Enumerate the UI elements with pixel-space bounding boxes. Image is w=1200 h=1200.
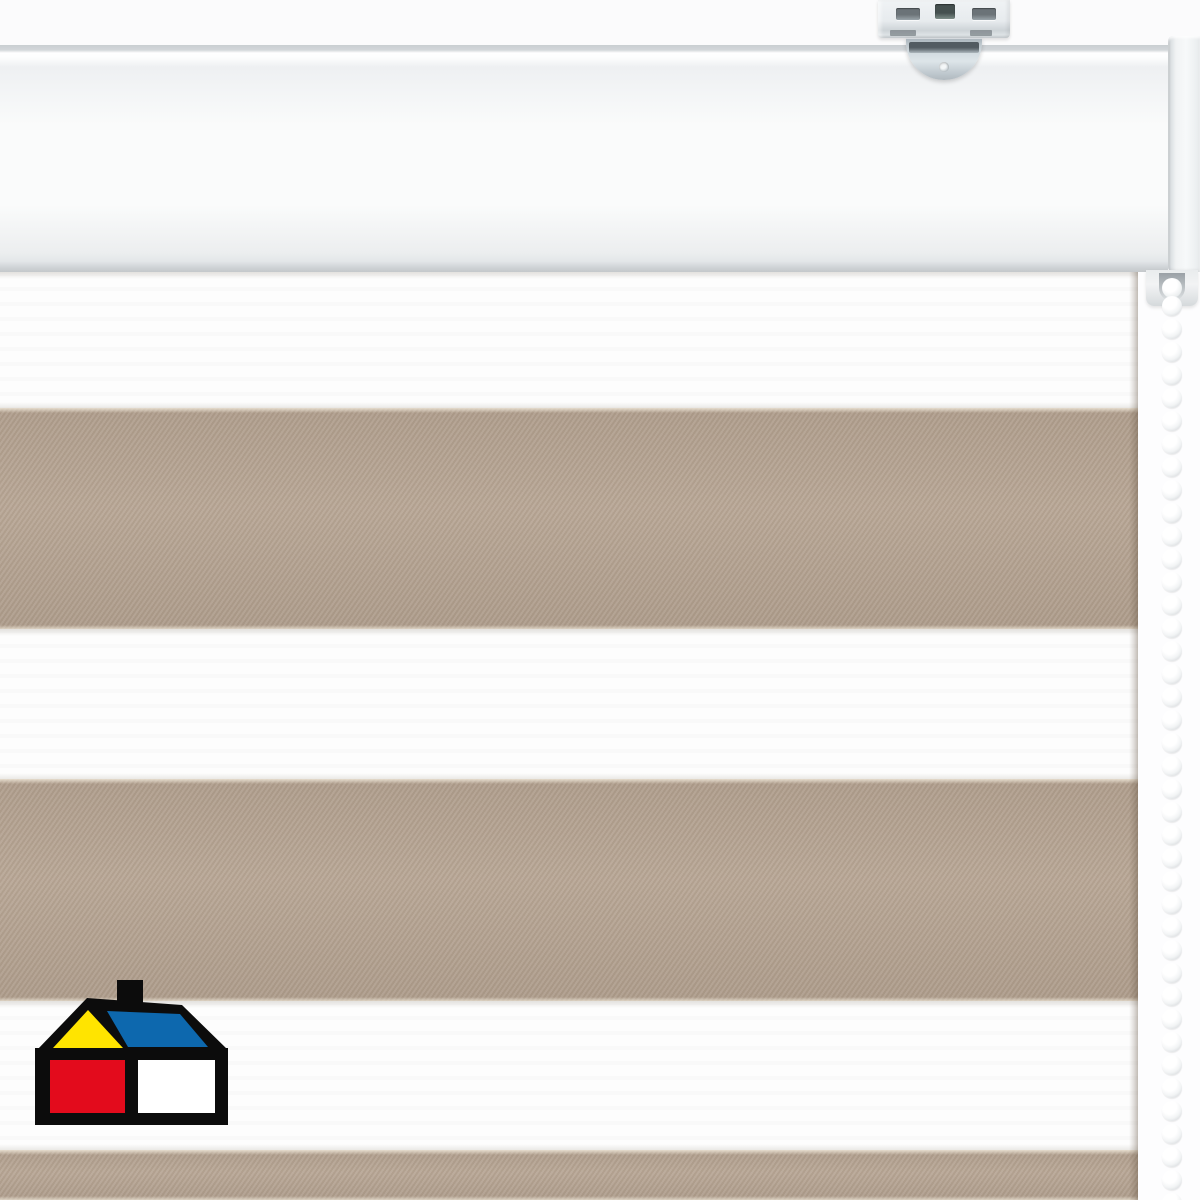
bracket-ceiling-plate bbox=[878, 0, 1010, 38]
chain-bead bbox=[1162, 710, 1182, 730]
chain-bead bbox=[1162, 871, 1182, 891]
mounting-bracket bbox=[878, 0, 1010, 82]
background-wall bbox=[0, 0, 1200, 45]
bracket-front-tab bbox=[906, 38, 982, 80]
chain-bead bbox=[1162, 894, 1182, 914]
chain-bead bbox=[1162, 503, 1182, 523]
chain-bead bbox=[1162, 733, 1182, 753]
chain-bead bbox=[1162, 411, 1182, 431]
chain-bead bbox=[1162, 1193, 1182, 1200]
fabric-stripe-beige bbox=[0, 1150, 1138, 1200]
chain-bead bbox=[1162, 365, 1182, 385]
logo-wall-white bbox=[138, 1060, 215, 1113]
fabric-right-edge-shade bbox=[1129, 272, 1138, 1200]
clutch-pulley bbox=[1162, 278, 1182, 298]
chain-bead bbox=[1162, 1147, 1182, 1167]
chain-bead bbox=[1162, 1055, 1182, 1075]
bracket-center-hole bbox=[935, 4, 955, 19]
chain-bead bbox=[1162, 319, 1182, 339]
chain-bead bbox=[1162, 388, 1182, 408]
chain-bead bbox=[1162, 779, 1182, 799]
chain-bead bbox=[1162, 1101, 1182, 1121]
chain-bead bbox=[1162, 940, 1182, 960]
chain-bead bbox=[1162, 1124, 1182, 1144]
bracket-fold-tab bbox=[970, 30, 992, 36]
chain-clutch bbox=[1146, 270, 1198, 306]
chain-bead bbox=[1162, 963, 1182, 983]
chain-bead bbox=[1162, 595, 1182, 615]
fabric-stripe-white bbox=[0, 272, 1138, 408]
chain-bead bbox=[1162, 687, 1182, 707]
chain-bead bbox=[1162, 917, 1182, 937]
zebra-roller-blind-product-photo bbox=[0, 0, 1200, 1200]
chain-bead bbox=[1162, 848, 1182, 868]
chain-bead bbox=[1162, 618, 1182, 638]
chain-bead bbox=[1162, 1078, 1182, 1098]
fabric-stripe-beige bbox=[0, 779, 1138, 1001]
bracket-screw-slot-right bbox=[972, 8, 996, 20]
bracket-tab-hole bbox=[939, 62, 949, 72]
fabric-stripe-beige bbox=[0, 408, 1138, 629]
bracket-tab-slot bbox=[909, 42, 979, 53]
logo-wall-red bbox=[50, 1060, 125, 1113]
chain-bead bbox=[1162, 457, 1182, 477]
chain-bead bbox=[1162, 825, 1182, 845]
chain-bead bbox=[1162, 986, 1182, 1006]
chain-bead bbox=[1162, 664, 1182, 684]
chain-bead bbox=[1162, 526, 1182, 546]
chain-bead bbox=[1162, 756, 1182, 776]
chain-bead bbox=[1162, 572, 1182, 592]
chain-bead bbox=[1162, 480, 1182, 500]
chain-bead bbox=[1162, 1170, 1182, 1190]
chain-bead bbox=[1162, 802, 1182, 822]
headrail-end-cap bbox=[1168, 36, 1200, 272]
chain-bead bbox=[1162, 434, 1182, 454]
chain-bead bbox=[1162, 1009, 1182, 1029]
bracket-screw-slot-left bbox=[896, 8, 920, 20]
chain-bead bbox=[1162, 342, 1182, 362]
homecenter-house-logo bbox=[33, 978, 230, 1126]
bracket-fold-tab bbox=[890, 30, 916, 36]
fabric-stripe-white bbox=[0, 629, 1138, 779]
chain-bead bbox=[1162, 549, 1182, 569]
chain-bead bbox=[1162, 641, 1182, 661]
chain-bead bbox=[1162, 1032, 1182, 1052]
